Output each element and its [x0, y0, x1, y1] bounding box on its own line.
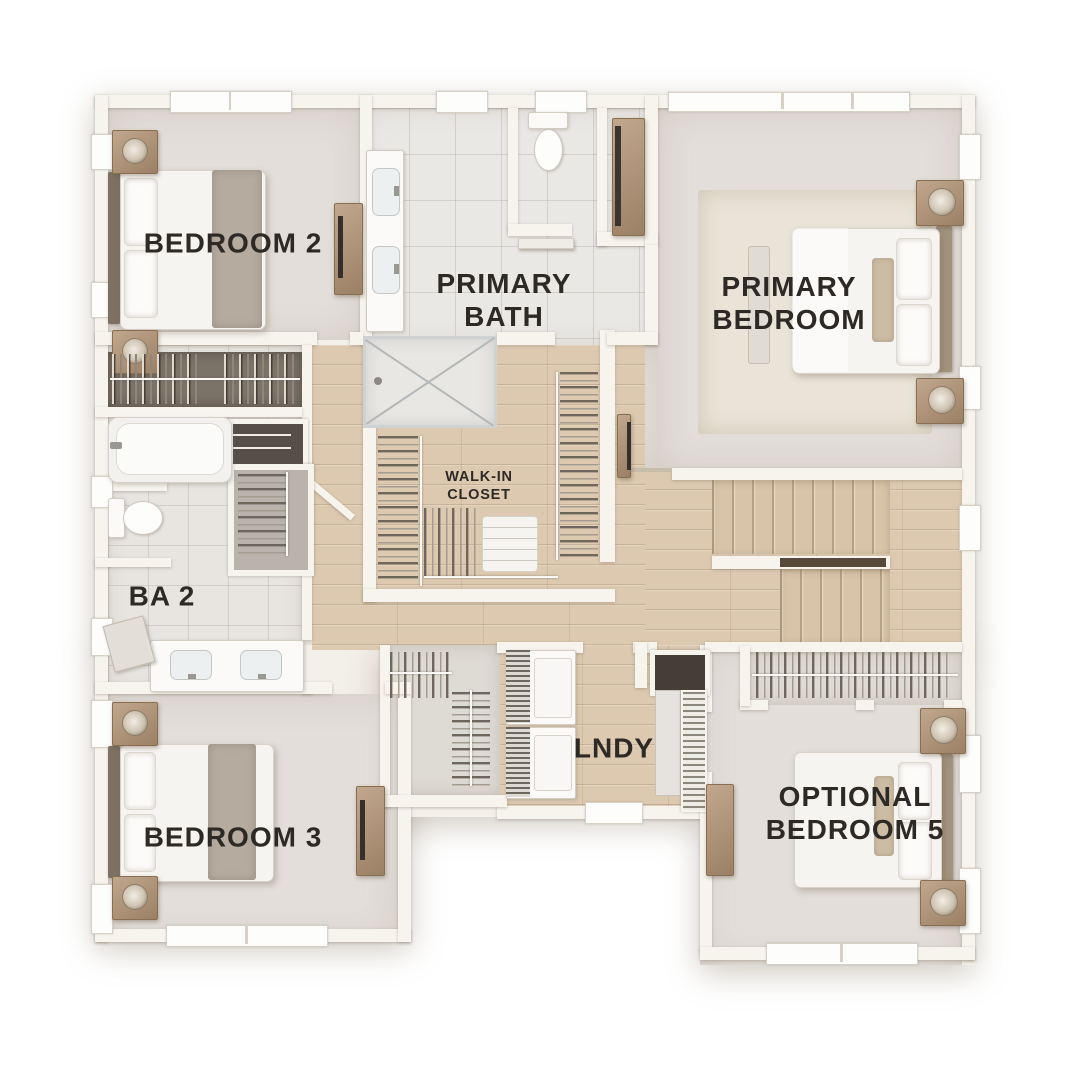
bedroom-2-pillow — [124, 250, 158, 318]
window-left-bedroom-2-a — [91, 134, 113, 170]
window-top-bath-b — [535, 91, 587, 113]
toilet-bowl — [123, 501, 163, 535]
bath-cabinet-nook-west-wall — [597, 108, 607, 246]
primary-pillow — [896, 238, 932, 300]
window-mullion — [229, 92, 231, 110]
primary-bedroom-west-wall-lower — [645, 245, 658, 345]
room-label-line: LNDY — [574, 732, 654, 765]
closet-rod — [286, 472, 288, 556]
bedroom-3-throw-blanket — [208, 744, 256, 880]
bedroom-3-lamp — [122, 710, 148, 736]
faucet — [188, 674, 196, 679]
room-label-line: OPTIONAL — [766, 780, 945, 813]
laundry-storage-wall — [635, 642, 647, 688]
washer-door — [534, 658, 572, 718]
toilet-room-south-wall — [508, 224, 572, 236]
bedroom-5-lamp — [930, 716, 958, 744]
folded-towels — [482, 516, 538, 572]
laundry-cabinet — [655, 690, 681, 796]
linen-closet-west-wall — [380, 645, 390, 807]
bath-cabinet-shadow — [615, 126, 621, 226]
side-closet — [228, 464, 314, 576]
hall-closet-south-wall — [95, 407, 302, 417]
washer-vent-grill — [506, 650, 530, 723]
room-label-primary-bath: PRIMARY BATH — [436, 267, 571, 333]
hanging-clothes — [560, 372, 598, 558]
bathtub — [108, 417, 232, 483]
bedroom-2-tv — [338, 216, 343, 278]
bedroom-3-east-wall — [398, 694, 411, 942]
primary-pillow — [896, 304, 932, 366]
walk-in-shower — [363, 336, 497, 428]
closet-rod — [752, 674, 958, 676]
room-label-bath-2: BA 2 — [129, 580, 196, 613]
closet-rod — [420, 436, 422, 586]
window-mullion — [245, 926, 248, 944]
bath-south-wall-a — [497, 332, 555, 345]
floor-plan: BEDROOM 2 PRIMARY BATH PRIMARY BEDROOM W… — [0, 0, 1080, 1080]
window-bottom-bedroom-5 — [766, 943, 918, 965]
hanging-clothes — [390, 652, 450, 698]
faucet — [394, 264, 399, 274]
window-mullion — [840, 944, 843, 962]
exterior-wall-left — [95, 95, 108, 942]
shower-glass-line — [365, 339, 494, 426]
room-label-line: BA 2 — [129, 580, 196, 613]
room-label-bedroom-2: BEDROOM 2 — [144, 227, 323, 260]
shower-glass-line — [366, 337, 495, 424]
stairs-upper-run — [712, 480, 890, 554]
faucet — [258, 674, 266, 679]
toilet-room-west-wall — [508, 108, 518, 232]
room-label-line: BEDROOM 5 — [766, 813, 945, 846]
room-label-laundry: LNDY — [574, 732, 654, 765]
window-mullion — [781, 93, 784, 109]
room-label-line: BEDROOM — [712, 303, 865, 336]
room-label-line: BEDROOM 2 — [144, 227, 323, 260]
window-right-stairwell — [959, 505, 981, 551]
toilet-tank — [528, 112, 568, 129]
walk-in-closet-south-wall — [363, 589, 615, 602]
hanging-clothes — [424, 508, 480, 578]
room-label-line: BATH — [436, 300, 571, 333]
window-left-bedroom-3-a — [91, 700, 113, 748]
primary-lamp — [928, 386, 956, 414]
hanging-clothes — [378, 436, 418, 584]
stairwell-north-wall — [672, 468, 962, 480]
bedroom-2-headboard — [108, 172, 120, 324]
stair-opening-slot — [780, 558, 886, 567]
room-label-optional-bedroom-5: OPTIONAL BEDROOM 5 — [766, 780, 945, 846]
room-label-line: CLOSET — [445, 486, 513, 504]
closet-rod — [424, 576, 558, 578]
dryer-door — [534, 735, 572, 791]
primary-tv — [627, 422, 631, 470]
bedroom-5-closet-west-wall — [740, 646, 750, 706]
room-label-walk-in-closet: WALK-IN CLOSET — [445, 468, 513, 504]
room-label-primary-bedroom: PRIMARY BEDROOM — [712, 270, 865, 336]
window-bottom-laundry — [585, 802, 643, 824]
toilet-alcove-wall — [95, 558, 171, 567]
stairs-lower-run — [780, 569, 890, 642]
bedroom-2-lamp — [122, 138, 148, 164]
window-left-bedroom-3-b — [91, 884, 113, 934]
window-top-bath-a — [436, 91, 488, 113]
dryer-vent-grill — [506, 727, 530, 797]
linen-shelf-line — [233, 447, 291, 449]
bath-shelf — [518, 238, 574, 249]
window-top-bedroom-2 — [170, 91, 292, 113]
faucet — [394, 186, 399, 196]
bedroom-5-closet-wall-b — [856, 700, 874, 710]
window-bottom-bedroom-3 — [166, 925, 328, 947]
bath-south-wall-b — [607, 332, 658, 345]
closet-rod — [470, 690, 472, 786]
room-label-bedroom-3: BEDROOM 3 — [144, 821, 323, 854]
closet-rod — [390, 672, 452, 674]
window-mullion — [851, 93, 854, 109]
bedroom-3-headboard — [108, 746, 120, 878]
bedroom-5-dresser — [706, 784, 734, 876]
room-label-line: WALK-IN — [445, 468, 513, 486]
linen-shelf-line — [233, 434, 291, 436]
bedroom-2-south-wall-stub — [350, 332, 363, 345]
closet-rod — [556, 372, 558, 560]
primary-accent-pillow — [872, 258, 894, 342]
room-label-line: PRIMARY — [436, 267, 571, 300]
primary-bedroom-west-wall-upper — [645, 95, 658, 245]
tub-faucet — [110, 442, 122, 449]
room-label-line: BEDROOM 3 — [144, 821, 323, 854]
linen-closet-south-wall — [380, 795, 507, 807]
shower-drain — [374, 377, 382, 385]
laundry-shelving — [681, 690, 707, 812]
bedroom-3-lamp — [122, 884, 148, 910]
primary-lamp — [928, 188, 956, 216]
bathtub-basin — [116, 423, 224, 475]
window-right-primary-a — [959, 134, 981, 180]
bedroom-3-tv — [360, 800, 365, 860]
room-label-line: PRIMARY — [712, 270, 865, 303]
window-top-primary — [668, 92, 910, 112]
toilet-bowl — [534, 129, 563, 171]
closet-rod — [110, 378, 300, 380]
bedroom-5-lamp — [930, 888, 958, 916]
hanging-clothes — [238, 474, 286, 554]
bedroom-3-pillow — [124, 752, 156, 810]
walk-in-closet-east-wall — [600, 330, 615, 562]
